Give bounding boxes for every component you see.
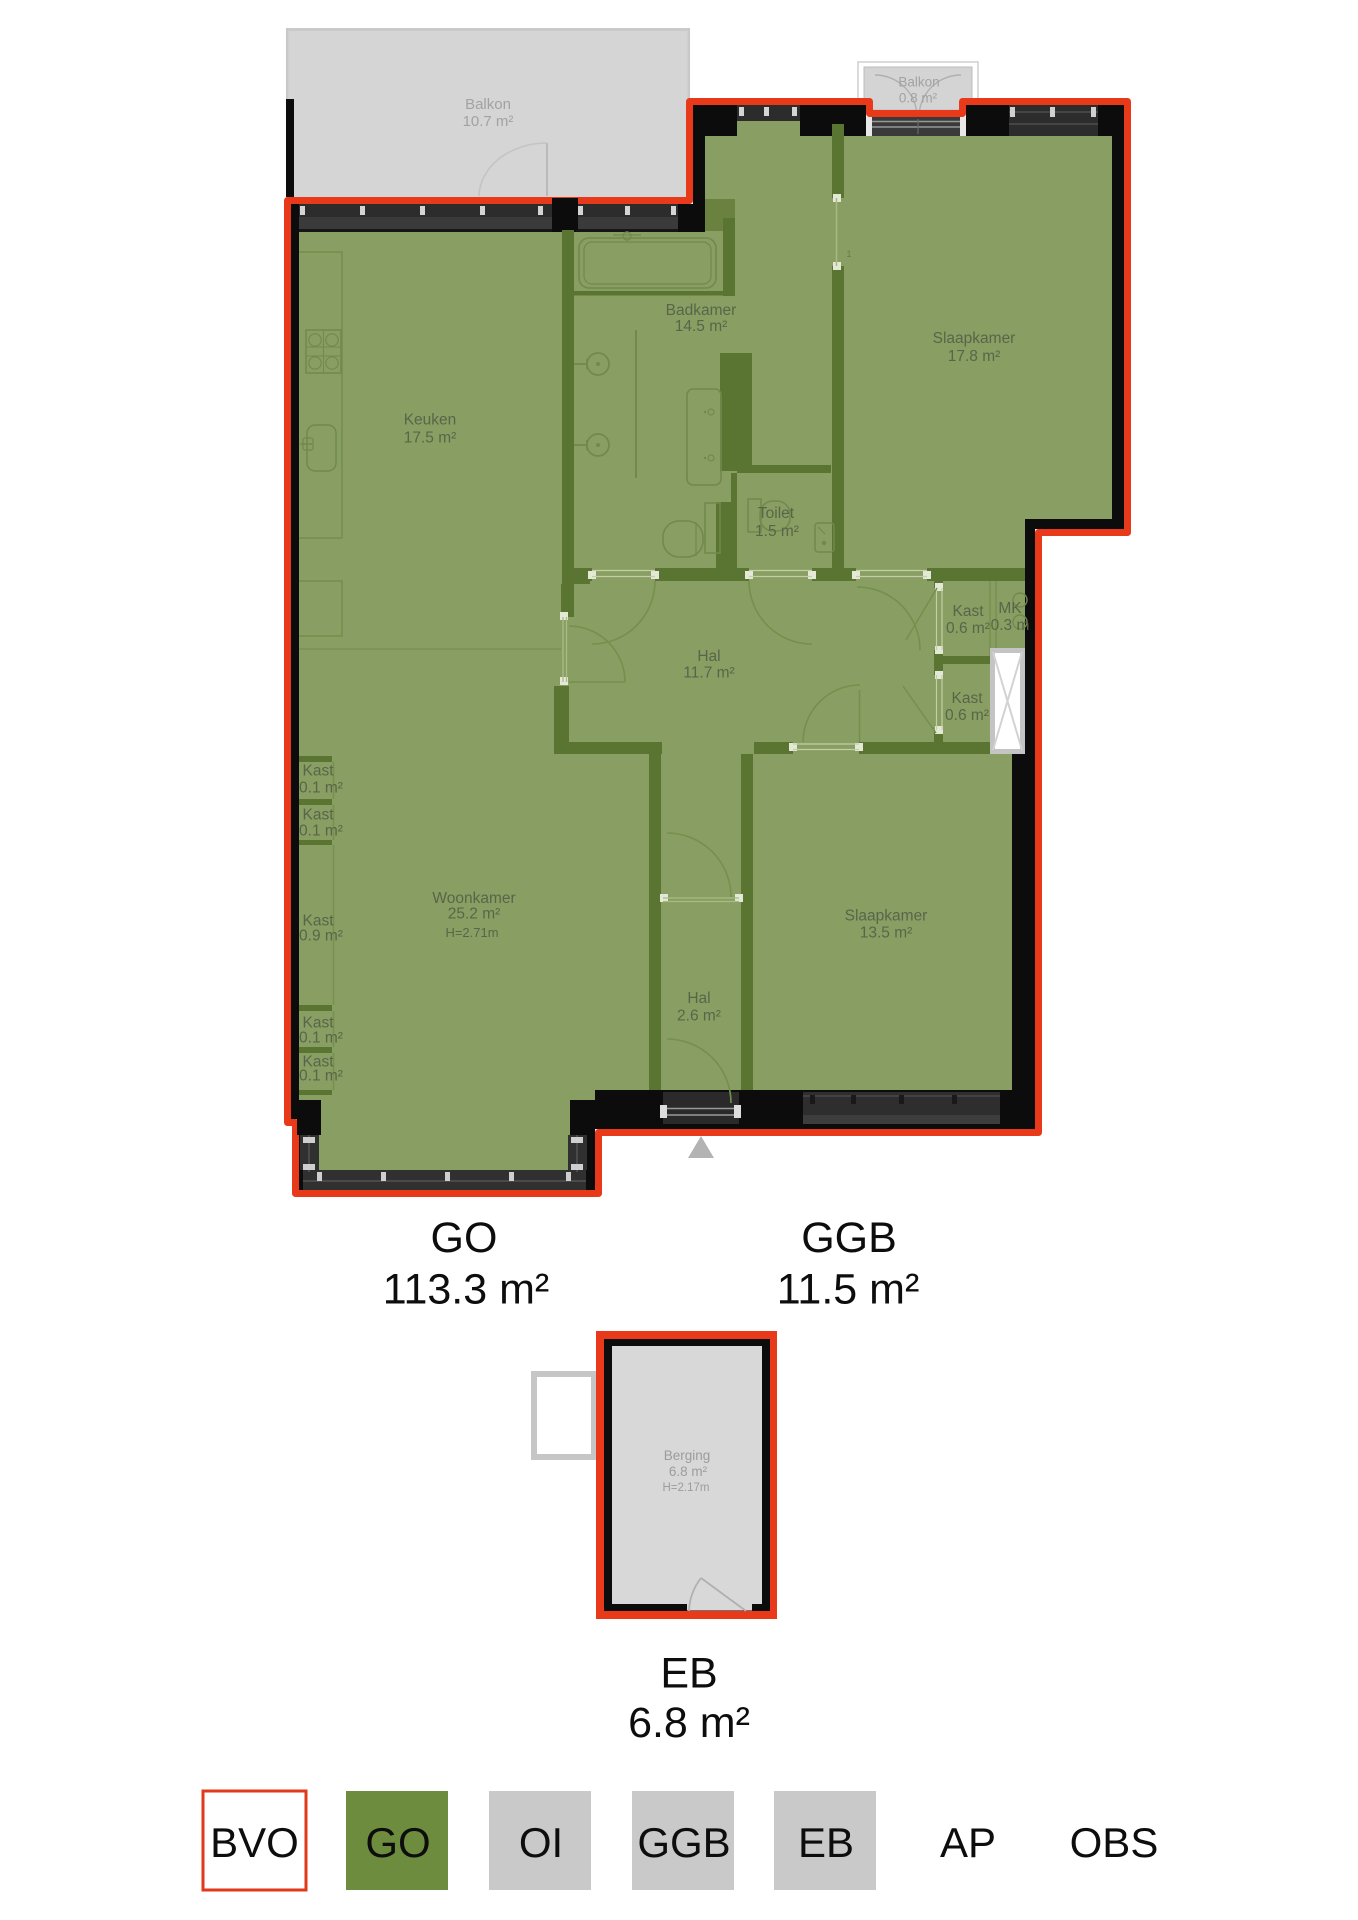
- svg-text:11.7 m²: 11.7 m²: [683, 665, 734, 682]
- svg-text:AP: AP: [940, 1819, 996, 1866]
- svg-text:1.5 m²: 1.5 m²: [755, 523, 799, 540]
- svg-text:6.8 m²: 6.8 m²: [628, 1699, 750, 1747]
- svg-text:EB: EB: [660, 1650, 717, 1698]
- svg-text:0.9 m²: 0.9 m²: [299, 928, 343, 945]
- svg-text:Slaapkamer: Slaapkamer: [845, 908, 928, 925]
- svg-text:13.5 m²: 13.5 m²: [860, 925, 913, 942]
- svg-text:0.8 m²: 0.8 m²: [899, 91, 938, 106]
- svg-text:0.1 m²: 0.1 m²: [299, 780, 343, 797]
- svg-text:25.2 m²: 25.2 m²: [448, 906, 501, 923]
- svg-text:6.8 m²: 6.8 m²: [669, 1464, 708, 1479]
- svg-text:0.6 m²: 0.6 m²: [946, 620, 990, 637]
- svg-text:OBS: OBS: [1070, 1819, 1159, 1866]
- svg-text:Slaapkamer: Slaapkamer: [933, 330, 1016, 347]
- svg-text:H=2.71m: H=2.71m: [445, 925, 498, 940]
- svg-text:GO: GO: [365, 1819, 430, 1866]
- svg-text:Berging: Berging: [664, 1448, 711, 1463]
- svg-text:Toilet: Toilet: [758, 505, 795, 522]
- svg-text:MK: MK: [998, 600, 1022, 617]
- svg-text:0.3 m: 0.3 m: [991, 617, 1030, 634]
- svg-text:113.3 m²: 113.3 m²: [383, 1266, 550, 1314]
- svg-text:H=2.17m: H=2.17m: [663, 1482, 710, 1494]
- svg-text:Kast: Kast: [951, 690, 983, 707]
- svg-text:GGB: GGB: [801, 1214, 897, 1262]
- svg-text:EB: EB: [798, 1819, 854, 1866]
- svg-text:14.5 m²: 14.5 m²: [675, 318, 728, 335]
- svg-text:Kast: Kast: [302, 807, 334, 824]
- svg-text:10.7 m²: 10.7 m²: [463, 113, 514, 130]
- svg-text:Kast: Kast: [952, 603, 984, 620]
- svg-text:17.5 m²: 17.5 m²: [404, 430, 457, 447]
- svg-text:0.1 m²: 0.1 m²: [299, 1030, 343, 1047]
- svg-text:Hal: Hal: [697, 648, 720, 665]
- svg-text:Hal: Hal: [687, 990, 710, 1007]
- svg-text:Woonkamer: Woonkamer: [432, 890, 515, 907]
- svg-text:Balkon: Balkon: [465, 96, 511, 113]
- svg-text:11.5 m²: 11.5 m²: [777, 1266, 920, 1314]
- svg-text:Keuken: Keuken: [404, 412, 457, 429]
- svg-text:Badkamer: Badkamer: [666, 302, 737, 319]
- svg-text:Balkon: Balkon: [898, 75, 939, 90]
- svg-text:Kast: Kast: [302, 763, 334, 780]
- svg-text:GO: GO: [431, 1214, 498, 1262]
- svg-text:BVO: BVO: [210, 1819, 299, 1866]
- svg-text:17.8 m²: 17.8 m²: [948, 348, 1001, 365]
- svg-text:1: 1: [846, 249, 851, 259]
- svg-text:OI: OI: [519, 1819, 563, 1866]
- svg-text:0.1 m²: 0.1 m²: [299, 1068, 343, 1085]
- svg-text:0.1 m²: 0.1 m²: [299, 823, 343, 840]
- svg-text:0.6 m²: 0.6 m²: [945, 707, 989, 724]
- svg-text:2.6 m²: 2.6 m²: [677, 1008, 721, 1025]
- svg-text:GGB: GGB: [637, 1819, 730, 1866]
